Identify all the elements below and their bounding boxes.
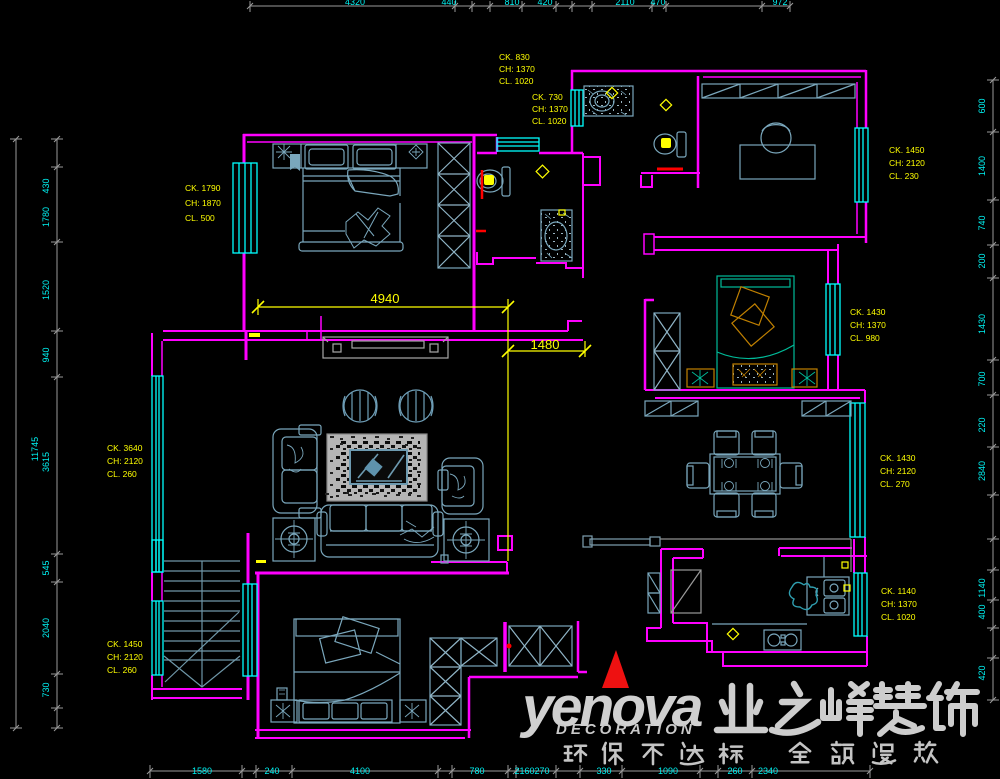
svg-text:2340: 2340 [758, 766, 778, 776]
svg-text:CK. 3640: CK. 3640 [107, 443, 143, 453]
svg-text:CK. 1790: CK. 1790 [185, 183, 221, 193]
svg-text:CK. 1430: CK. 1430 [850, 307, 886, 317]
svg-text:CK. 1450: CK. 1450 [107, 639, 143, 649]
svg-text:430: 430 [41, 178, 51, 193]
svg-text:740: 740 [977, 215, 987, 230]
svg-text:CH: 1370: CH: 1370 [532, 104, 568, 114]
svg-text:940: 940 [41, 347, 51, 362]
svg-text:3615: 3615 [41, 452, 51, 472]
svg-text:2040: 2040 [41, 618, 51, 638]
svg-text:CL. 1020: CL. 1020 [532, 116, 567, 126]
svg-text:1580: 1580 [192, 766, 212, 776]
svg-text:2110: 2110 [615, 0, 634, 7]
svg-text:260: 260 [727, 766, 742, 776]
svg-text:2840: 2840 [977, 461, 987, 481]
svg-text:DECORATION: DECORATION [556, 721, 696, 738]
svg-text:220: 220 [977, 417, 987, 432]
svg-text:600: 600 [977, 98, 987, 113]
svg-text:CK. 1450: CK. 1450 [889, 145, 925, 155]
svg-text:CH: 2120: CH: 2120 [880, 466, 916, 476]
svg-text:CL. 500: CL. 500 [185, 213, 215, 223]
svg-text:972: 972 [772, 0, 787, 7]
svg-text:CL. 260: CL. 260 [107, 665, 137, 675]
svg-text:1140: 1140 [977, 578, 987, 597]
svg-text:CK. 730: CK. 730 [532, 92, 563, 102]
svg-text:CH: 1870: CH: 1870 [185, 198, 221, 208]
svg-text:CH: 1370: CH: 1370 [881, 599, 917, 609]
svg-text:CL. 270: CL. 270 [880, 479, 910, 489]
svg-text:4320: 4320 [345, 0, 365, 7]
svg-text:1430: 1430 [977, 314, 987, 334]
svg-text:1480: 1480 [531, 337, 560, 352]
svg-text:CH: 1370: CH: 1370 [850, 320, 886, 330]
svg-text:1780: 1780 [41, 207, 51, 227]
svg-text:CL. 230: CL. 230 [889, 171, 919, 181]
svg-text:200: 200 [977, 253, 987, 268]
svg-text:330: 330 [596, 766, 611, 776]
svg-text:CL. 260: CL. 260 [107, 469, 137, 479]
svg-text:440: 440 [441, 0, 456, 7]
svg-text:11745: 11745 [30, 437, 40, 461]
svg-text:CK. 1430: CK. 1430 [880, 453, 916, 463]
svg-text:4100: 4100 [350, 766, 370, 776]
svg-text:CH: 2120: CH: 2120 [107, 652, 143, 662]
svg-text:CK. 1140: CK. 1140 [881, 586, 916, 596]
svg-text:CL. 1020: CL. 1020 [499, 76, 534, 86]
svg-text:420: 420 [977, 665, 987, 680]
svg-text:1400: 1400 [977, 156, 987, 176]
svg-text:545: 545 [41, 560, 51, 575]
svg-text:CK. 830: CK. 830 [499, 52, 530, 62]
svg-text:CH: 1370: CH: 1370 [499, 64, 535, 74]
svg-text:700: 700 [977, 371, 987, 386]
svg-text:CH: 2120: CH: 2120 [107, 456, 143, 466]
svg-text:1090: 1090 [658, 766, 678, 776]
svg-text:2160270: 2160270 [514, 766, 549, 776]
svg-text:470: 470 [650, 0, 665, 7]
svg-text:780: 780 [469, 766, 484, 776]
svg-text:CL. 980: CL. 980 [850, 333, 880, 343]
svg-text:CL. 1020: CL. 1020 [881, 612, 916, 622]
svg-text:420: 420 [537, 0, 552, 7]
svg-text:730: 730 [41, 682, 51, 697]
svg-text:CH: 2120: CH: 2120 [889, 158, 925, 168]
svg-text:4940: 4940 [371, 291, 400, 306]
svg-text:810: 810 [504, 0, 519, 7]
svg-text:240: 240 [264, 766, 279, 776]
svg-text:400: 400 [977, 604, 987, 619]
svg-text:1520: 1520 [41, 280, 51, 300]
